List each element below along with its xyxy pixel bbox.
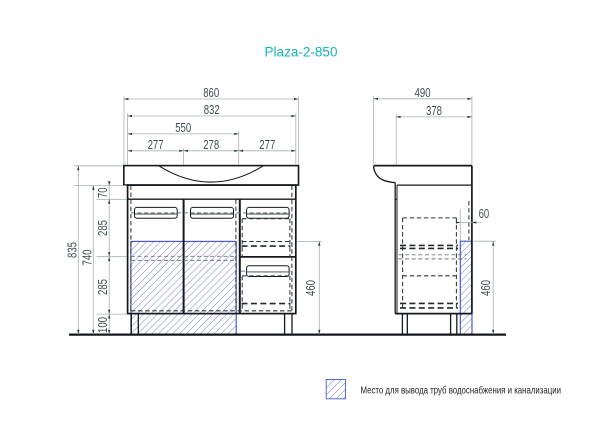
svg-text:285: 285 bbox=[96, 220, 110, 236]
svg-text:285: 285 bbox=[96, 279, 110, 295]
svg-text:832: 832 bbox=[204, 103, 220, 117]
svg-text:Место для вывода труб водоснаб: Место для вывода труб водоснабжения и ка… bbox=[361, 385, 562, 397]
svg-text:277: 277 bbox=[259, 138, 275, 152]
svg-text:378: 378 bbox=[426, 104, 442, 118]
svg-text:70: 70 bbox=[96, 188, 110, 199]
svg-text:860: 860 bbox=[203, 86, 219, 100]
svg-text:835: 835 bbox=[65, 242, 79, 258]
svg-text:490: 490 bbox=[415, 86, 431, 100]
svg-text:550: 550 bbox=[175, 121, 191, 135]
svg-text:60: 60 bbox=[479, 207, 490, 221]
svg-text:740: 740 bbox=[80, 250, 94, 266]
svg-text:277: 277 bbox=[148, 138, 164, 152]
svg-text:278: 278 bbox=[203, 138, 219, 152]
svg-text:Plaza-2-850: Plaza-2-850 bbox=[265, 45, 338, 60]
svg-text:100: 100 bbox=[96, 317, 110, 333]
svg-text:460: 460 bbox=[304, 280, 318, 296]
svg-text:460: 460 bbox=[479, 280, 493, 296]
